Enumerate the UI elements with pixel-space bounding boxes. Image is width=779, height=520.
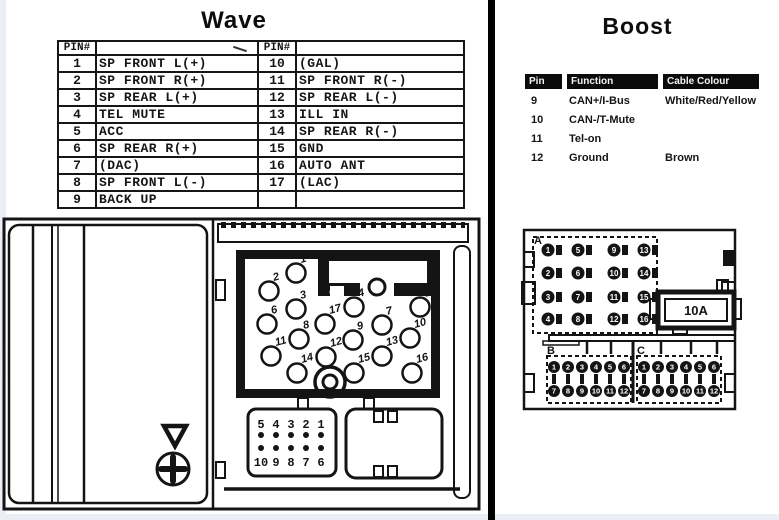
pin-function-cell: (DAC) [96, 157, 258, 174]
wave-pin-12 [317, 348, 336, 367]
pin-number-cell: 8 [58, 174, 96, 191]
boost-connector-diagram: A 12345678910111213141516 10A B 12345678… [521, 226, 743, 416]
boost-a-pin-label-8: 8 [576, 315, 581, 324]
pin-header-right: PIN# [258, 41, 296, 55]
boost-header-function: Function [567, 74, 658, 89]
pin-function-cell [296, 191, 464, 208]
pin-function-cell: SP REAR L(+) [96, 89, 258, 106]
section-c-pins: 123456789101112 [638, 361, 720, 397]
wave-pin-4 [345, 298, 364, 317]
pin-function-cell: SP REAR L(-) [296, 89, 464, 106]
harness-dot [318, 432, 324, 438]
pin-number-cell: 11 [258, 72, 296, 89]
pin-row: 9BACK UP [58, 191, 464, 208]
boost-a-pin-label-10: 10 [610, 269, 619, 278]
orientation-arrow-icon [164, 426, 186, 446]
pin-function-cell: TEL MUTE [96, 106, 258, 123]
wave-pin-10 [401, 329, 420, 348]
wave-pin-table: PIN# PIN# 1SP FRONT L(+)10(GAL)2SP FRONT… [57, 40, 465, 209]
boost-c-pin-label-11: 11 [696, 387, 704, 396]
boost-a-pin-label-11: 11 [610, 293, 619, 302]
wiring-diagram-page: Wave PIN# PIN# 1SP FRONT L(+)10(GAL)2SP … [0, 0, 779, 520]
boost-b-pin-label-11: 11 [606, 387, 614, 396]
boost-colour-cell [663, 127, 759, 146]
pin-row: 8SP FRONT L(-)17(LAC) [58, 174, 464, 191]
wave-pin-15 [345, 364, 364, 383]
boost-a-pin-label-9: 9 [612, 246, 617, 255]
harness-top-digit: 3 [287, 418, 294, 432]
wave-pin-11 [262, 347, 281, 366]
harness-bottom-digit: 7 [302, 456, 309, 470]
pin-function-cell: SP REAR R(-) [296, 123, 464, 140]
pin-number-cell: 6 [58, 140, 96, 157]
boost-c-pin-label-7: 7 [642, 387, 646, 396]
pin-row: 2SP FRONT R(+)11SP FRONT R(-) [58, 72, 464, 89]
pin-number-cell: 16 [258, 157, 296, 174]
boost-a-pin-label-15: 15 [640, 293, 649, 302]
function-header-left [96, 41, 258, 55]
harness-dot [288, 432, 294, 438]
harness-top-digit: 5 [257, 418, 264, 432]
pin-number-cell [258, 191, 296, 208]
wave-pin-table-body: 1SP FRONT L(+)10(GAL)2SP FRONT R(+)11SP … [58, 55, 464, 208]
harness-dot [303, 432, 309, 438]
scan-mark [233, 46, 247, 52]
section-b-box [547, 356, 631, 403]
pin-number-cell: 13 [258, 106, 296, 123]
wave-panel-title: Wave [0, 7, 468, 35]
screw-icon [157, 453, 189, 485]
wave-pin-3 [287, 300, 306, 319]
harness-bottom-digit: 8 [287, 456, 294, 470]
wave-pin-6 [258, 315, 277, 334]
boost-c-pin-label-9: 9 [670, 387, 674, 396]
boost-b-pin-label-1: 1 [552, 363, 556, 372]
section-c-box [637, 356, 721, 403]
pin-number-cell: 10 [258, 55, 296, 72]
serrated-top-strip [218, 224, 468, 242]
boost-a-pin-label-5: 5 [576, 246, 581, 255]
boost-a-pin-label-1: 1 [546, 246, 551, 255]
pin-function-cell: SP REAR R(+) [96, 140, 258, 157]
boost-c-pin-label-10: 10 [682, 387, 690, 396]
boost-b-pin-label-7: 7 [552, 387, 556, 396]
radio-left-panel [9, 225, 207, 503]
boost-pin-cell: 10 [525, 108, 562, 127]
wave-pin-14 [288, 364, 307, 383]
boost-panel-title: Boost [496, 13, 779, 40]
pin-row: 3SP REAR L(+)12SP REAR L(-) [58, 89, 464, 106]
boost-header-cable-colour: Cable Colour [663, 74, 759, 89]
wave-pin-5 [411, 298, 430, 317]
boost-c-pin-label-3: 3 [670, 363, 674, 372]
pin-row: 7(DAC)16AUTO ANT [58, 157, 464, 174]
boost-c-pin-label-5: 5 [698, 363, 702, 372]
wave-pin-16 [403, 364, 422, 383]
boost-a-pin-label-14: 14 [640, 269, 649, 278]
pin-number-cell: 2 [58, 72, 96, 89]
boost-pin-cell: 12 [525, 146, 562, 165]
wave-pin-7 [373, 316, 392, 335]
harness-pin-dots [258, 432, 324, 451]
harness-dot [288, 445, 294, 451]
harness-dot [258, 445, 264, 451]
pin-function-cell: (GAL) [296, 55, 464, 72]
section-a-label: A [534, 235, 542, 247]
boost-b-pin-label-5: 5 [608, 363, 612, 372]
fuse: 10A [650, 280, 741, 334]
boost-c-pin-label-12: 12 [710, 387, 718, 396]
wave-pin-13 [373, 347, 392, 366]
pin-header-left: PIN# [58, 41, 96, 55]
section-a-pins: 12345678910111213141516 [542, 244, 659, 326]
boost-colour-cell: Brown [663, 146, 759, 165]
boost-a-pin-label-3: 3 [546, 293, 551, 302]
boost-function-cell: Ground [567, 146, 658, 165]
function-header-right [296, 41, 464, 55]
harness-pin-numbers: 54321109876 [254, 418, 325, 470]
boost-table: Pin Function Cable Colour 9CAN+/I-BusWhi… [525, 74, 759, 165]
panel-divider [488, 0, 495, 520]
harness-dot [273, 432, 279, 438]
wave-pin-1 [287, 264, 306, 283]
boost-c-pin-label-2: 2 [656, 363, 660, 372]
pin-row: 6SP REAR R(+)15GND [58, 140, 464, 157]
harness-top-digit: 2 [302, 418, 309, 432]
boost-a-pin-label-6: 6 [576, 269, 581, 278]
boost-b-pin-label-8: 8 [566, 387, 570, 396]
pin-number-cell: 9 [58, 191, 96, 208]
connector-stubs [298, 398, 374, 409]
boost-a-pin-label-12: 12 [610, 315, 619, 324]
pin-function-cell: ILL IN [296, 106, 464, 123]
wave-pin-17 [316, 315, 335, 334]
boost-a-pin-label-7: 7 [576, 293, 581, 302]
boost-c-pin-label-1: 1 [642, 363, 646, 372]
harness-dot [303, 445, 309, 451]
pin-row: 1SP FRONT L(+)10(GAL) [58, 55, 464, 72]
pin-function-cell: ACC [96, 123, 258, 140]
boost-c-pin-label-8: 8 [656, 387, 660, 396]
boost-function-cell: Tel-on [567, 127, 658, 146]
pin-number-cell: 3 [58, 89, 96, 106]
pin-number-cell: 5 [58, 123, 96, 140]
boost-function-cell: CAN-/T-Mute [567, 108, 658, 127]
pin-function-cell: SP FRONT L(-) [96, 174, 258, 191]
boost-a-pin-label-16: 16 [640, 315, 649, 324]
wave-pin-table-header-row: PIN# PIN# [58, 41, 464, 55]
boost-header-pin: Pin [525, 74, 562, 89]
pin-number-cell: 14 [258, 123, 296, 140]
boost-c-pin-label-6: 6 [712, 363, 716, 372]
boost-colour-cell [663, 108, 759, 127]
wave-pin-2 [260, 282, 279, 301]
boost-b-pin-label-9: 9 [580, 387, 584, 396]
pin-number-cell: 15 [258, 140, 296, 157]
fuse-rating-label: 10A [684, 303, 708, 318]
pin-number-cell: 1 [58, 55, 96, 72]
harness-top-digit: 1 [317, 418, 324, 432]
boost-b-pin-label-12: 12 [620, 387, 628, 396]
pin-function-cell: AUTO ANT [296, 157, 464, 174]
harness-dot [318, 445, 324, 451]
wave-pin-9 [344, 331, 363, 350]
pin-function-cell: SP FRONT L(+) [96, 55, 258, 72]
boost-b-pin-label-3: 3 [580, 363, 584, 372]
wave-connector-diagram: 1234567891011121314151617 54321109876 [2, 216, 482, 516]
pin-number-cell: 4 [58, 106, 96, 123]
section-b-pins: 123456789101112 [548, 361, 630, 397]
boost-pin-cell: 11 [525, 127, 562, 146]
pin-row: 4TEL MUTE13ILL IN [58, 106, 464, 123]
pin-number-cell: 7 [58, 157, 96, 174]
harness-top-digit: 4 [272, 418, 279, 432]
harness-bottom-digit: 10 [254, 456, 268, 470]
boost-colour-cell: White/Red/Yellow [663, 89, 759, 108]
boost-b-pin-label-10: 10 [592, 387, 600, 396]
boost-pin-cell: 9 [525, 89, 562, 108]
harness-dot [258, 432, 264, 438]
boost-a-pin-label-13: 13 [640, 246, 649, 255]
boost-a-pin-label-2: 2 [546, 269, 551, 278]
harness-bottom-digit: 6 [317, 456, 324, 470]
pin-function-cell: SP FRONT R(+) [96, 72, 258, 89]
harness-connector-large [346, 409, 442, 478]
boost-b-pin-label-6: 6 [622, 363, 626, 372]
pin-function-cell: BACK UP [96, 191, 258, 208]
boost-a-pin-label-4: 4 [546, 315, 551, 324]
boost-b-pin-label-2: 2 [566, 363, 570, 372]
key-ring [369, 279, 385, 295]
pin-number-cell: 17 [258, 174, 296, 191]
pin-function-cell: GND [296, 140, 464, 157]
pin-function-cell: SP FRONT R(-) [296, 72, 464, 89]
pin-function-cell: (LAC) [296, 174, 464, 191]
pin-row: 5ACC14SP REAR R(-) [58, 123, 464, 140]
wave-pin-8 [290, 330, 309, 349]
boost-function-cell: CAN+/I-Bus [567, 89, 658, 108]
harness-bottom-digit: 9 [272, 456, 279, 470]
harness-dot [273, 445, 279, 451]
pin-number-cell: 12 [258, 89, 296, 106]
